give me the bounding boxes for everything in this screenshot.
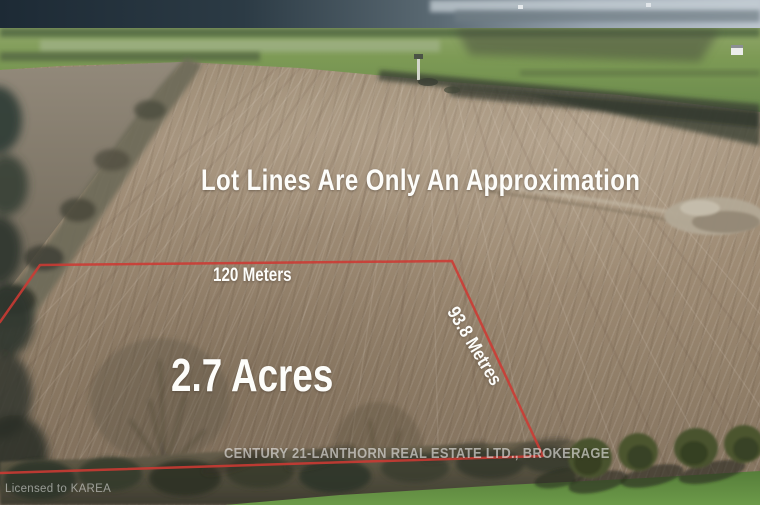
aerial-photo: Lot Lines Are Only An Approximation 120 …: [0, 0, 760, 505]
license-watermark: Licensed to KAREA: [5, 484, 111, 496]
disclaimer-label: Lot Lines Are Only An Approximation: [201, 166, 640, 196]
disclaimer-text: Lot Lines Are Only An Approximation: [201, 166, 750, 196]
area-label: 2.7 Acres: [171, 352, 374, 398]
brokerage-watermark: CENTURY 21-LANTHORN REAL ESTATE LTD., BR…: [224, 446, 673, 461]
top-measurement-label: 120 Meters: [213, 266, 311, 285]
lot-outline: [0, 0, 760, 505]
